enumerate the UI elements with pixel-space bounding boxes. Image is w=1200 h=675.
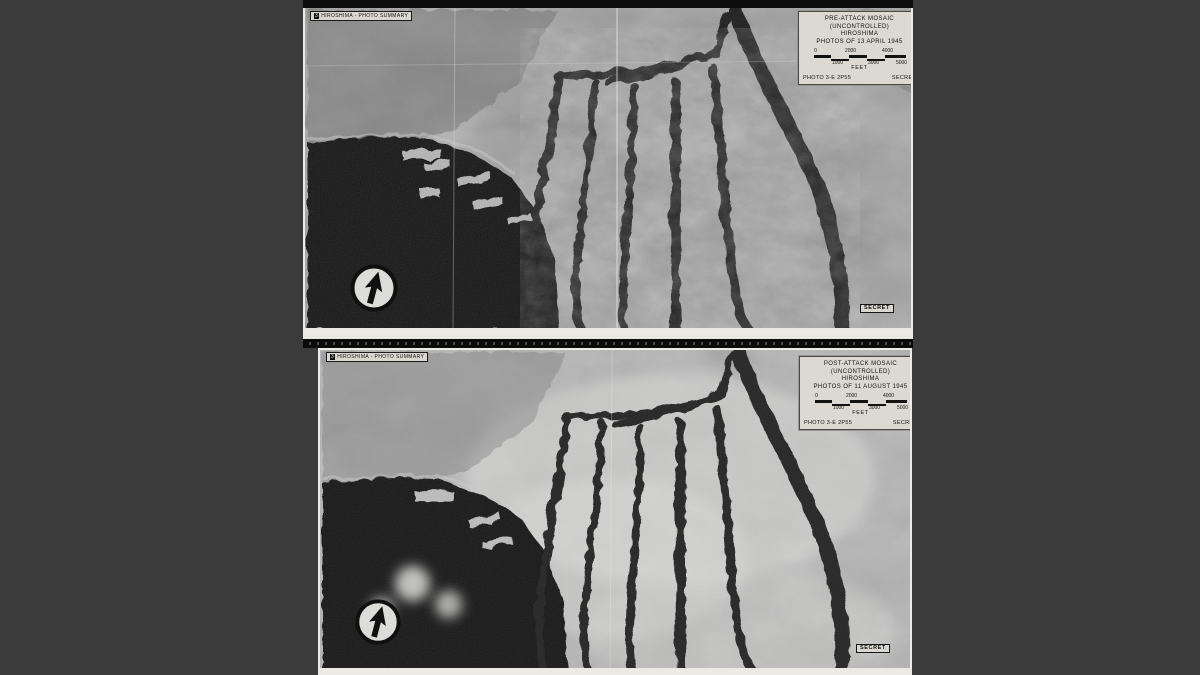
scale-tick: 4000	[882, 49, 893, 54]
scale-tick: 1000	[833, 406, 844, 411]
card-city: HIROSHIMA	[804, 376, 910, 384]
north-arrow-icon	[354, 598, 402, 646]
scale-tick: 0	[815, 394, 818, 399]
card-date: PHOTOS OF 11 AUGUST 1945	[804, 384, 910, 392]
scale-bar: 0 2000 4000 1000 3000 5000	[815, 394, 907, 409]
photo-summary-label: 3 HIROSHIMA - PHOTO SUMMARY	[310, 11, 412, 21]
classification-text: SECRET	[892, 75, 911, 81]
scale-tick: 2000	[845, 49, 856, 54]
scale-bar: 0 2000 4000 1000 3000 5000	[814, 49, 906, 64]
card-title: PRE-ATTACK MOSAIC	[803, 16, 911, 24]
photo-summary-label: 3 HIROSHIMA - PHOTO SUMMARY	[326, 352, 428, 362]
film-perforation-strip	[303, 339, 913, 348]
film-separator-strip	[303, 334, 913, 348]
card-subtitle: (UNCONTROLLED)	[804, 369, 910, 377]
scale-tick: 1000	[832, 61, 843, 66]
film-edge-strip	[303, 0, 913, 8]
scale-tick: 2000	[846, 394, 857, 399]
summary-number-badge: 3	[330, 354, 335, 360]
photo-reference: PHOTO 3-E 2P55	[804, 420, 852, 426]
scale-tick: 5000	[897, 406, 908, 411]
card-date: PHOTOS OF 13 APRIL 1945	[803, 39, 911, 47]
pre-attack-info-card: PRE-ATTACK MOSAIC (UNCONTROLLED) HIROSHI…	[798, 11, 911, 85]
north-arrow-icon	[349, 263, 399, 313]
scale-tick: 3000	[869, 406, 880, 411]
secret-stamp: SECRET	[860, 304, 894, 313]
summary-label-text: HIROSHIMA - PHOTO SUMMARY	[337, 354, 424, 360]
pre-attack-panel: 3 HIROSHIMA - PHOTO SUMMARY PRE-ATTACK M…	[303, 0, 913, 334]
scale-tick: 0	[814, 49, 817, 54]
secret-stamp-text: SECRET	[860, 645, 886, 651]
secret-stamp: SECRET	[856, 644, 890, 653]
post-attack-panel: 3 HIROSHIMA - PHOTO SUMMARY POST-ATTACK …	[318, 348, 912, 675]
pre-attack-photo: 3 HIROSHIMA - PHOTO SUMMARY PRE-ATTACK M…	[305, 8, 911, 328]
post-attack-info-card: POST-ATTACK MOSAIC (UNCONTROLLED) HIROSH…	[799, 356, 910, 430]
summary-number-badge: 3	[314, 13, 319, 19]
scale-tick: 5000	[896, 61, 907, 66]
scale-tick: 3000	[868, 61, 879, 66]
photo-reference: PHOTO 3-E 2P55	[803, 75, 851, 81]
screenshot-stage: 3 HIROSHIMA - PHOTO SUMMARY PRE-ATTACK M…	[0, 0, 1200, 675]
card-subtitle: (UNCONTROLLED)	[803, 24, 911, 32]
card-city: HIROSHIMA	[803, 31, 911, 39]
secret-stamp-text: SECRET	[864, 305, 890, 311]
scale-tick: 4000	[883, 394, 894, 399]
classification-text: SECRET	[893, 420, 910, 426]
scale-unit: FEET	[804, 410, 910, 416]
scale-unit: FEET	[803, 65, 911, 71]
card-title: POST-ATTACK MOSAIC	[804, 361, 910, 369]
summary-label-text: HIROSHIMA - PHOTO SUMMARY	[321, 13, 408, 19]
post-attack-photo: 3 HIROSHIMA - PHOTO SUMMARY POST-ATTACK …	[320, 350, 910, 668]
